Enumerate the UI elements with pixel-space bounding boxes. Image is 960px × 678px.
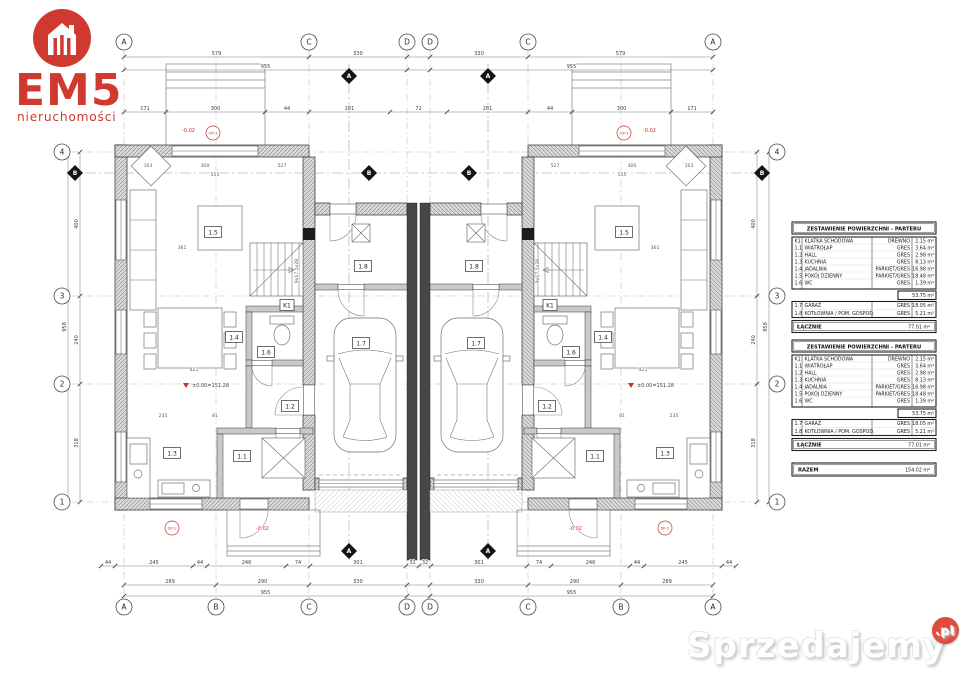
room-label: 1.1 (590, 453, 600, 460)
table-cell-id: 1.3 (795, 259, 803, 265)
dim-label: 74 (536, 560, 542, 566)
table-cell-area: 18.05 m² (912, 303, 934, 309)
interior-dim-label: 300 (628, 163, 637, 169)
table-cell-name: GARAŻ (805, 420, 822, 427)
dim-label: 72 (415, 106, 421, 112)
dim-label: 171 (140, 106, 150, 112)
dim-label: 246 (586, 560, 596, 566)
dim-label: 44 (284, 106, 290, 112)
room-label: 1.4 (229, 334, 239, 341)
stair-spec-note: 9x17,5x28 (294, 259, 300, 284)
grid-bubble-label: C (306, 38, 311, 47)
grid-bubble-label: D (427, 603, 433, 612)
table-cell-name: POKÓJ DZIENNY (805, 272, 843, 279)
interior-dim-label: 527 (551, 163, 560, 169)
dim-label: 171 (687, 106, 697, 112)
dim-label: 300 (617, 106, 627, 112)
table-cell-id: 1.7 (795, 421, 803, 427)
table-cell-area: 2.98 m² (915, 252, 934, 258)
room-label: 1.8 (469, 263, 479, 270)
table-cell-id: 1.6 (795, 280, 803, 286)
table-cell-area: 5.21 m² (915, 429, 934, 435)
logo-brand: EM5 (15, 65, 122, 116)
dim-label: 300 (211, 106, 221, 112)
dim-label: 44 (547, 106, 553, 112)
room-label: 1.6 (566, 349, 576, 356)
paving-marker-label: SP-1 (661, 525, 670, 530)
interior-dim-label: 81 (619, 413, 625, 419)
area-tables-layer: ZESTAWIENIE POWIERZCHNI - PARTERUK1KLATK… (792, 222, 936, 476)
dim-label: 330 (353, 51, 363, 57)
grid-bubble-label: C (525, 603, 530, 612)
grid-bubble-label: D (404, 38, 410, 47)
dim-label: 32 (422, 560, 428, 566)
section-marker-label: B (467, 170, 472, 177)
table-cell-name: WIATROŁAP (805, 245, 833, 251)
room-label: 1.4 (598, 334, 608, 341)
table-cell-area: 2.98 m² (915, 370, 934, 376)
room-label: 1.3 (660, 450, 670, 457)
dim-label: 579 (212, 51, 222, 57)
table-cell-finish: GRES (897, 363, 910, 369)
table-cell-finish: GRES (897, 259, 910, 265)
table-cell-area: 18.48 m² (912, 273, 934, 279)
interior-dim-label: 421 (190, 367, 199, 373)
table-cell-finish: DREWNO (888, 238, 910, 244)
table-cell-name: KOTŁOWNIA / POM. GOSPOD. (805, 429, 875, 435)
table-cell-name: KUCHNIA (805, 377, 827, 383)
logo-tagline: nieruchomości (17, 110, 116, 124)
table-cell-id: 1.4 (795, 384, 803, 390)
summary-label: RAZEM (798, 468, 818, 474)
table-cell-finish: DREWNO (888, 356, 910, 362)
table-cell-finish: PARKIET/GRES (876, 384, 910, 390)
table-cell-id: 1.1 (795, 363, 803, 369)
dim-label: 400 (74, 219, 80, 229)
garage-door (315, 475, 407, 512)
table-cell-id: 1.2 (795, 252, 803, 258)
grid-bubble-label: A (710, 38, 716, 47)
grid-bubble-label: 3 (775, 292, 780, 301)
table-cell-name: POKÓJ DZIENNY (805, 390, 843, 397)
table-cell-id: 1.3 (795, 377, 803, 383)
dim-label: 958 (763, 322, 769, 332)
dim-label: 240 (74, 335, 80, 345)
dim-label: 955 (567, 64, 577, 70)
interior-dim-label: 361 (651, 245, 660, 251)
dim-label: 579 (616, 51, 626, 57)
below-grade-note: -0.02 (256, 526, 269, 532)
table-total-value: 77.01 m² (908, 325, 930, 331)
table-cell-finish: GRES (897, 280, 910, 286)
structural-column (303, 228, 315, 240)
interior-dim-label: 103 (144, 163, 153, 169)
table-cell-finish: GRES (897, 245, 910, 251)
interior-dim-label: 235 (670, 413, 679, 419)
dim-label: 318 (74, 438, 80, 448)
dim-label: 240 (751, 335, 757, 345)
interior-dim-label: 527 (278, 163, 287, 169)
table-cell-name: JADALNIA (804, 384, 828, 390)
room-label: 1.6 (261, 349, 271, 356)
table-cell-id: 1.5 (795, 391, 803, 397)
dim-label: 281 (345, 106, 355, 112)
entry-porch (227, 510, 320, 556)
table-subtotal: 53.75 m² (912, 293, 934, 299)
interior-dim-label: 235 (159, 413, 168, 419)
room-label: 1.5 (208, 229, 218, 236)
dim-label: 318 (751, 438, 757, 448)
table-cell-area: 1.39 m² (915, 398, 934, 404)
dim-label: 44 (105, 560, 111, 566)
section-marker-label: A (347, 548, 352, 555)
grid-bubble-label: B (618, 603, 623, 612)
table-cell-id: 1.5 (795, 273, 803, 279)
table-title: ZESTAWIENIE POWIERZCHNI - PARTERU (807, 226, 922, 232)
dim-label: 330 (474, 579, 484, 585)
room-label: 1.3 (167, 450, 177, 457)
grid-bubble-label: B (213, 603, 218, 612)
room-label: 1.2 (285, 403, 295, 410)
grid-bubble-label: 1 (60, 498, 65, 507)
dim-label: 400 (751, 219, 757, 229)
table-cell-id: 1.1 (795, 245, 803, 251)
below-grade-note: -0.02 (643, 128, 656, 134)
section-marker-label: B (367, 170, 372, 177)
interior-dim-label: 421 (639, 367, 648, 373)
level-note: ±0.00=151.28 (192, 383, 229, 389)
table-cell-finish: PARKIET/GRES (876, 391, 910, 397)
table-total-label: ŁĄCZNIE (796, 325, 822, 331)
toilet-tank (270, 316, 294, 324)
dim-label: 955 (261, 590, 271, 596)
table-cell-area: 18.05 m² (912, 421, 934, 427)
dim-label: 44 (197, 560, 203, 566)
grid-bubble-label: D (427, 38, 433, 47)
grid-bubble-label: 1 (775, 498, 780, 507)
table-cell-area: 2.15 m² (915, 238, 934, 244)
dim-label: 246 (242, 560, 252, 566)
grid-bubble-label: D (404, 603, 410, 612)
table-cell-id: 1.7 (795, 303, 803, 309)
table-cell-name: KUCHNIA (805, 259, 827, 265)
table-cell-area: 8.13 m² (915, 259, 934, 265)
unit-left-plan (115, 64, 417, 560)
table-cell-name: KLATKA SCHODOWA (805, 238, 854, 244)
dim-label: 301 (353, 560, 363, 566)
notes-layer: ±0.00=151.28±0.00=151.28-0.02-0.02-0.02-… (165, 126, 674, 535)
below-grade-note: -0.02 (569, 526, 582, 532)
grid-bubble-label: 2 (60, 380, 65, 389)
grid-bubble-label: C (525, 38, 530, 47)
dim-label: 44 (634, 560, 640, 566)
watermark-tld-badge: .pl (932, 617, 959, 644)
agency-logo: EM5 nieruchomości (8, 4, 123, 129)
dim-label: 245 (678, 560, 688, 566)
interior-dim-label: 555 (618, 172, 627, 178)
grid-bubble-label: 4 (775, 148, 780, 157)
table-cell-name: JADALNIA (804, 266, 828, 272)
table-cell-area: 16.98 m² (912, 266, 934, 272)
table-total-label: ŁĄCZNIE (796, 443, 822, 449)
table-cell-area: 18.48 m² (912, 391, 934, 397)
dim-label: 44 (726, 560, 732, 566)
table-cell-id: 1.4 (795, 266, 803, 272)
table-cell-finish: PARKIET/GRES (876, 273, 910, 279)
room-label-layer: 1.51.51.81.8K1K11.61.61.41.41.71.71.21.2… (164, 227, 674, 462)
table-cell-name: WC (805, 280, 814, 286)
table-total-value: 77.01 m² (908, 443, 930, 449)
section-marker-label: A (486, 548, 491, 555)
level-marker-triangle (628, 383, 634, 388)
table-cell-id: 1.8 (795, 429, 803, 435)
dim-label: 74 (295, 560, 301, 566)
stair-spec-note: 9x17,5x28 (535, 259, 541, 284)
section-marker-label: B (760, 170, 765, 177)
table-cell-name: WIATROŁAP (805, 363, 833, 369)
table-cell-area: 3.64 m² (915, 245, 934, 251)
dim-label: 330 (474, 51, 484, 57)
paving-marker-label: OP-3 (620, 130, 630, 135)
room-label: 1.7 (471, 340, 481, 347)
grid-bubble-label: 2 (775, 380, 780, 389)
table-cell-id: K1 (795, 356, 801, 362)
section-marker-label: B (73, 170, 78, 177)
dim-label: 245 (149, 560, 159, 566)
dim-label: 289 (662, 579, 672, 585)
dim-label: 958 (62, 322, 68, 332)
table-cell-name: KLATKA SCHODOWA (805, 356, 854, 362)
room-label: 1.1 (237, 453, 247, 460)
table-cell-finish: GRES (897, 311, 910, 317)
grid-bubble-label: 4 (60, 148, 65, 157)
table-cell-name: HALL (805, 370, 818, 376)
level-note: ±0.00=151.28 (637, 383, 674, 389)
party-wall (407, 203, 417, 560)
table-cell-name: GARAŻ (805, 302, 822, 309)
dim-label: 290 (570, 579, 580, 585)
room-label: 1.8 (358, 263, 368, 270)
table-cell-finish: GRES (897, 421, 910, 427)
dim-label: 281 (483, 106, 493, 112)
dim-label: 32 (409, 560, 415, 566)
room-label: 1.5 (619, 229, 629, 236)
paving-marker-label: SP-1 (168, 525, 177, 530)
watermark-name: Sprzedajemy (687, 626, 946, 666)
dim-label: 301 (474, 560, 484, 566)
below-grade-note: -0.02 (182, 128, 195, 134)
section-marker-label: A (486, 73, 491, 80)
grid-bubble-label: A (710, 603, 716, 612)
table-cell-area: 8.13 m² (915, 377, 934, 383)
table-subtotal: 53.75 m² (912, 411, 934, 417)
room-label: K1 (546, 302, 554, 309)
level-marker-triangle (183, 383, 189, 388)
table-cell-id: 1.6 (795, 398, 803, 404)
dim-label: 955 (567, 590, 577, 596)
room-label: 1.2 (542, 403, 552, 410)
room-label: 1.7 (356, 340, 366, 347)
table-cell-area: 2.15 m² (915, 356, 934, 362)
watermark: Sprzedajemy .pl (687, 626, 946, 666)
watermark-text: Sprzedajemy .pl (687, 626, 946, 666)
dim-label: 290 (258, 579, 268, 585)
dim-label: 330 (353, 579, 363, 585)
table-cell-id: K1 (795, 238, 801, 244)
table-cell-name: KOTŁOWNIA / POM. GOSPOD. (805, 311, 875, 317)
table-cell-id: 1.2 (795, 370, 803, 376)
table-cell-finish: GRES (897, 370, 910, 376)
grid-bubble-label: A (121, 603, 127, 612)
interior-dim-label: 81 (212, 413, 218, 419)
dim-label: 289 (165, 579, 175, 585)
table-cell-area: 3.64 m² (915, 363, 934, 369)
table-cell-finish: PARKIET/GRES (876, 266, 910, 272)
table-cell-finish: GRES (897, 429, 910, 435)
interior-dim-label: 300 (201, 163, 210, 169)
dim-label: 955 (261, 64, 271, 70)
room-label: K1 (283, 302, 291, 309)
table-cell-finish: GRES (897, 398, 910, 404)
table-cell-area: 5.21 m² (915, 311, 934, 317)
interior-dim-label: 103 (685, 163, 694, 169)
blueprint-canvas: 5793303305799559551713004428172281443001… (0, 0, 960, 678)
paving-marker-label: OP-3 (209, 130, 219, 135)
table-cell-area: 16.98 m² (912, 384, 934, 390)
grid-bubble-label: C (306, 603, 311, 612)
table-cell-finish: GRES (897, 303, 910, 309)
toilet-bowl (274, 325, 290, 345)
unit-right-plan (420, 64, 722, 560)
table-cell-name: HALL (805, 252, 818, 258)
table-cell-id: 1.8 (795, 311, 803, 317)
table-cell-finish: GRES (897, 252, 910, 258)
table-cell-finish: GRES (897, 377, 910, 383)
table-title: ZESTAWIENIE POWIERZCHNI - PARTERU (807, 344, 922, 350)
floor-plan-drawing: 5793303305799559551713004428172281443001… (0, 0, 960, 678)
dining-table (158, 308, 222, 368)
grid-bubble-label: 3 (60, 292, 65, 301)
table-cell-area: 1.39 m² (915, 280, 934, 286)
section-marker-label: A (347, 73, 352, 80)
summary-value: 154.02 m² (905, 468, 930, 474)
table-cell-name: WC (805, 398, 814, 404)
interior-dim-label: 361 (178, 245, 187, 251)
interior-dim-label: 555 (211, 172, 220, 178)
